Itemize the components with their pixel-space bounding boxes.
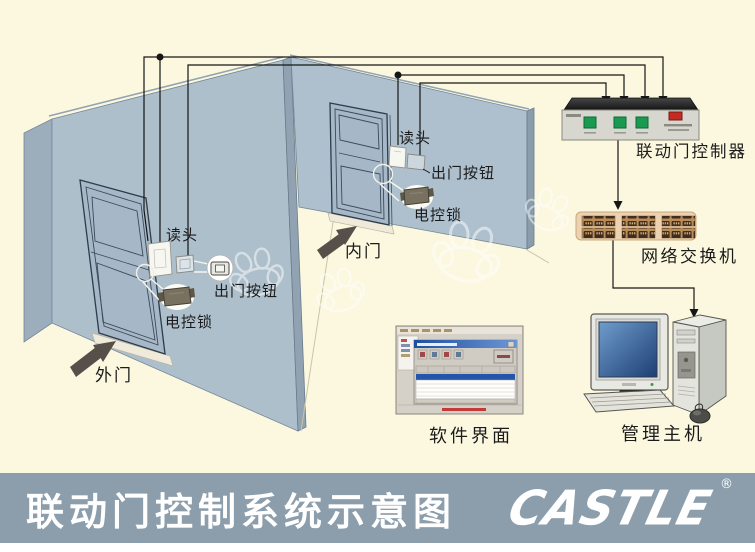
label-outer-door: 外门 [95, 366, 133, 386]
electric-lock-right [404, 187, 429, 205]
button-zoom-icon-inner-left [216, 265, 225, 272]
mouse-highlight [693, 411, 701, 416]
toolbar-icon-glyph [420, 352, 425, 357]
controller-green-button [636, 117, 648, 128]
switch-ports [662, 228, 695, 238]
label-controller: 联动门控制器 [636, 142, 747, 161]
diagram-title: 联动门控制系统示意图 [26, 481, 456, 536]
controller-button-caption [636, 132, 648, 134]
dialog-close-button [508, 342, 514, 348]
label-exit-button-right: 出门按钮 [431, 164, 495, 182]
door-controller-device [562, 98, 699, 140]
toolbar-icon-glyph [456, 352, 461, 357]
switch-ports [582, 216, 615, 226]
inner-door [328, 103, 394, 234]
controller-green-button [614, 117, 626, 128]
menu-item [400, 329, 408, 332]
label-reader-right: 读头 [399, 129, 431, 147]
management-host-computer [584, 314, 726, 423]
label-software: 软件界面 [429, 426, 513, 447]
menu-item [411, 329, 419, 332]
dialog-title-text [417, 343, 457, 346]
switch-ports [582, 228, 615, 238]
castle-logo-text: CASTLE [503, 480, 718, 536]
controller-model-text [668, 129, 689, 131]
bottom-banner: 联动门控制系统示意图 CASTLE ® [0, 473, 755, 543]
card-reader-right [389, 146, 406, 168]
label-inner-door: 内门 [345, 242, 383, 262]
tower-front-panel [678, 352, 695, 378]
monitor-logo-badge [622, 383, 636, 386]
label-switch: 网络交换机 [641, 247, 739, 267]
controller-top-face [564, 98, 698, 110]
inner-wall-end-edge [527, 108, 534, 249]
wire-junction-dot [395, 72, 402, 79]
exit-button-left [176, 255, 194, 273]
monitor-power-led [651, 383, 654, 386]
bottom-white-strip [0, 543, 755, 552]
controller-green-button [584, 117, 596, 128]
switch-ports [622, 216, 655, 226]
controller-button-caption [614, 132, 626, 134]
mouse [690, 409, 710, 423]
toolbar-icon-glyph [432, 352, 437, 357]
tower-drive-bay [677, 339, 695, 343]
monitor-screen [599, 322, 657, 377]
controller-model-text [664, 124, 692, 126]
castle-logo: CASTLE ® [510, 481, 729, 535]
electric-lock-left [163, 287, 191, 306]
software-window [396, 326, 523, 414]
controller-brand-mark [566, 114, 581, 117]
tree-item [401, 344, 410, 347]
list-selected-row [416, 374, 515, 380]
controller-red-indicator [669, 112, 682, 120]
label-lock-right: 电控锁 [414, 206, 462, 224]
label-exit-button-left: 出门按钮 [214, 282, 278, 300]
controller-button-caption [584, 132, 596, 134]
network-switch-device [576, 212, 696, 240]
menu-item [422, 329, 430, 332]
registered-trademark-icon: ® [720, 477, 733, 492]
tower-power-button [684, 358, 688, 362]
dialog-statusbar [416, 399, 515, 403]
tree-item [401, 354, 410, 357]
diagram-page: 读头 出门按钮 电控锁 读头 出门按钮 电控锁 外门 内门 联动门控制器 网络交… [0, 0, 755, 552]
tree-item [401, 339, 407, 342]
card-reader-left [148, 241, 172, 277]
tower-panel-slot [681, 369, 691, 372]
menu-item [433, 329, 441, 332]
toolbar-icon-glyph [444, 352, 449, 357]
tower-drive-bay [677, 330, 695, 335]
switch-ports [662, 216, 695, 226]
status-alert-text [442, 408, 486, 411]
exit-button-right [407, 154, 425, 170]
label-lock-left: 电控锁 [165, 313, 213, 331]
left-side-wall [24, 119, 52, 342]
diagram-canvas: 读头 出门按钮 电控锁 读头 出门按钮 电控锁 外门 内门 联动门控制器 网络交… [0, 0, 755, 473]
wire-junction-dot [157, 54, 164, 61]
label-reader-left: 读头 [166, 226, 198, 244]
dialog-action-button-text [497, 355, 510, 358]
menu-item [444, 329, 452, 332]
tree-item [401, 349, 410, 352]
switch-ports [622, 228, 655, 238]
label-host: 管理主机 [621, 424, 705, 445]
